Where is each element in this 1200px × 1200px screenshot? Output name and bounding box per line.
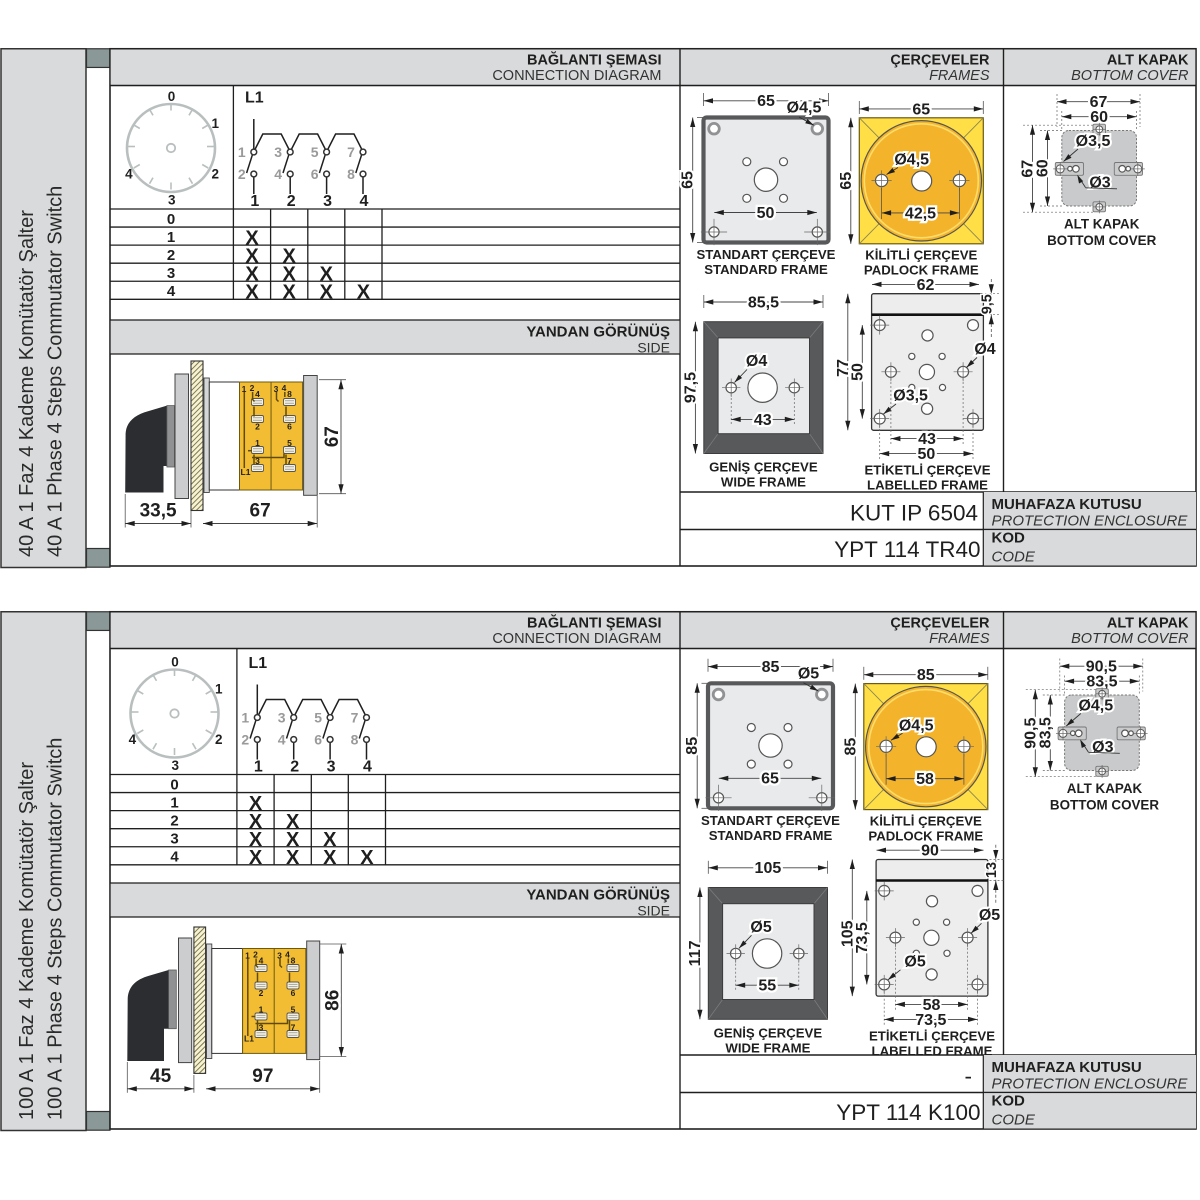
svg-text:LABELLED FRAME: LABELLED FRAME [872, 1043, 993, 1058]
svg-text:62: 62 [917, 277, 935, 294]
svg-text:85,5: 85,5 [748, 294, 779, 311]
svg-text:CONNECTION DIAGRAM: CONNECTION DIAGRAM [492, 631, 661, 647]
svg-text:50: 50 [917, 446, 935, 463]
svg-text:1: 1 [250, 193, 259, 210]
svg-text:50: 50 [849, 363, 866, 381]
svg-text:3: 3 [255, 456, 260, 466]
svg-text:0: 0 [171, 655, 179, 670]
svg-text:KUT IP 6504: KUT IP 6504 [850, 501, 978, 526]
svg-text:3: 3 [170, 830, 178, 847]
svg-text:4: 4 [259, 956, 264, 966]
svg-text:4: 4 [285, 950, 290, 960]
svg-text:L1: L1 [249, 655, 268, 672]
svg-text:CODE: CODE [992, 1111, 1036, 1128]
svg-text:Ø4: Ø4 [974, 341, 995, 358]
svg-text:Ø5: Ø5 [979, 907, 1000, 924]
svg-text:YPT 114 TR40: YPT 114 TR40 [834, 537, 980, 562]
svg-text:67: 67 [250, 501, 271, 522]
svg-text:2: 2 [290, 759, 299, 776]
svg-text:Ø3,5: Ø3,5 [1076, 133, 1111, 150]
svg-text:4: 4 [170, 849, 179, 866]
svg-text:1: 1 [241, 709, 249, 725]
svg-text:1: 1 [245, 951, 250, 961]
svg-text:4: 4 [255, 389, 260, 399]
svg-text:100 A 1 Phase 4 Steps Commutat: 100 A 1 Phase 4 Steps Commutator Switch [45, 738, 67, 1120]
svg-text:2: 2 [238, 166, 246, 182]
svg-text:3: 3 [168, 193, 176, 208]
svg-text:1: 1 [242, 384, 247, 394]
svg-text:STANDART ÇERÇEVE: STANDART ÇERÇEVE [697, 247, 836, 262]
svg-text:67: 67 [322, 426, 343, 447]
svg-text:Ø5: Ø5 [904, 953, 925, 970]
svg-text:KOD: KOD [992, 1092, 1026, 1109]
svg-text:STANDARD FRAME: STANDARD FRAME [709, 828, 833, 843]
svg-text:Ø4,5: Ø4,5 [787, 100, 822, 117]
svg-text:2: 2 [253, 950, 258, 960]
svg-text:3: 3 [274, 144, 282, 160]
svg-text:3: 3 [323, 193, 332, 210]
svg-text:85: 85 [684, 737, 701, 755]
svg-text:90: 90 [921, 843, 939, 860]
svg-text:Ø4: Ø4 [746, 353, 767, 370]
svg-text:Ø4,5: Ø4,5 [894, 152, 929, 169]
svg-text:40 A 1 Phase 4 Steps Commutato: 40 A 1 Phase 4 Steps Commutator Switch [45, 186, 67, 557]
svg-text:SIDE: SIDE [637, 903, 670, 919]
svg-text:8: 8 [291, 956, 296, 966]
svg-text:X: X [323, 847, 337, 869]
svg-text:73,5: 73,5 [854, 922, 871, 953]
svg-text:GENİŞ ÇERÇEVE: GENİŞ ÇERÇEVE [714, 1025, 823, 1040]
svg-text:55: 55 [758, 978, 776, 995]
svg-text:97,5: 97,5 [682, 372, 699, 403]
svg-text:YANDAN GÖRÜNÜŞ: YANDAN GÖRÜNÜŞ [526, 887, 670, 904]
svg-text:7: 7 [291, 1023, 296, 1033]
svg-text:2: 2 [215, 732, 223, 747]
svg-text:2: 2 [259, 988, 264, 998]
svg-text:2: 2 [241, 731, 249, 747]
svg-text:BOTTOM COVER: BOTTOM COVER [1050, 798, 1159, 813]
svg-text:65: 65 [680, 171, 697, 189]
svg-text:KOD: KOD [992, 529, 1026, 546]
svg-text:X: X [245, 281, 259, 303]
svg-text:ALT KAPAK: ALT KAPAK [1107, 53, 1189, 69]
svg-text:L1: L1 [244, 1034, 254, 1044]
svg-text:PROTECTION ENCLOSURE: PROTECTION ENCLOSURE [992, 1075, 1189, 1092]
svg-text:PADLOCK FRAME: PADLOCK FRAME [864, 263, 979, 278]
svg-text:85: 85 [917, 667, 935, 684]
svg-text:6: 6 [291, 988, 296, 998]
svg-text:KİLİTLİ ÇERÇEVE: KİLİTLİ ÇERÇEVE [870, 813, 982, 828]
svg-text:0: 0 [167, 211, 175, 228]
svg-text:105: 105 [755, 860, 782, 877]
svg-text:PADLOCK FRAME: PADLOCK FRAME [868, 828, 983, 843]
svg-text:1: 1 [167, 229, 175, 246]
svg-text:3: 3 [278, 709, 286, 725]
svg-text:ÇERÇEVELER: ÇERÇEVELER [890, 53, 990, 69]
svg-text:X: X [357, 281, 371, 303]
svg-text:45: 45 [150, 1066, 172, 1087]
svg-text:-: - [965, 1064, 973, 1089]
svg-text:Ø4,5: Ø4,5 [899, 717, 934, 734]
svg-text:117: 117 [687, 940, 704, 966]
svg-text:ÇERÇEVELER: ÇERÇEVELER [890, 616, 990, 632]
svg-text:MUHAFAZA KUTUSU: MUHAFAZA KUTUSU [992, 1059, 1142, 1076]
svg-text:WIDE FRAME: WIDE FRAME [725, 1040, 810, 1055]
svg-text:86: 86 [322, 990, 343, 1011]
svg-text:65: 65 [761, 771, 779, 788]
svg-text:50: 50 [757, 205, 775, 222]
svg-text:ETİKETLİ ÇERÇEVE: ETİKETLİ ÇERÇEVE [869, 1028, 995, 1043]
svg-text:6: 6 [287, 422, 292, 432]
svg-text:65: 65 [912, 101, 930, 118]
svg-text:7: 7 [351, 709, 359, 725]
svg-text:2: 2 [287, 193, 296, 210]
svg-text:4: 4 [125, 167, 133, 182]
svg-text:5: 5 [314, 709, 322, 725]
svg-text:X: X [320, 281, 334, 303]
svg-text:13: 13 [984, 862, 1000, 878]
svg-text:3: 3 [167, 265, 175, 282]
svg-text:CODE: CODE [992, 548, 1036, 565]
svg-text:X: X [360, 847, 374, 869]
svg-text:BOTTOM COVER: BOTTOM COVER [1047, 233, 1156, 248]
svg-text:65: 65 [838, 172, 855, 190]
svg-text:WIDE FRAME: WIDE FRAME [721, 475, 806, 490]
svg-text:X: X [286, 847, 300, 869]
svg-text:BAĞLANTI ŞEMASI: BAĞLANTI ŞEMASI [527, 51, 662, 69]
svg-text:1: 1 [238, 144, 246, 160]
svg-text:1: 1 [259, 1005, 264, 1015]
svg-text:YANDAN GÖRÜNÜŞ: YANDAN GÖRÜNÜŞ [526, 324, 670, 341]
svg-text:Ø4,5: Ø4,5 [1078, 698, 1113, 715]
svg-text:X: X [283, 281, 297, 303]
svg-text:SIDE: SIDE [637, 340, 670, 356]
svg-text:1: 1 [255, 438, 260, 448]
svg-text:CONNECTION DIAGRAM: CONNECTION DIAGRAM [492, 68, 661, 84]
svg-text:YPT 114 K100: YPT 114 K100 [836, 1100, 980, 1125]
svg-text:33,5: 33,5 [140, 501, 177, 522]
svg-text:L1: L1 [241, 467, 251, 477]
svg-text:2: 2 [167, 247, 175, 264]
svg-text:7: 7 [287, 456, 292, 466]
svg-text:8: 8 [351, 731, 359, 747]
svg-text:5: 5 [287, 438, 292, 448]
svg-text:1: 1 [170, 794, 178, 811]
svg-text:5: 5 [311, 144, 319, 160]
svg-text:Ø5: Ø5 [750, 919, 771, 936]
svg-text:ALT KAPAK: ALT KAPAK [1064, 217, 1140, 232]
svg-text:2: 2 [170, 812, 178, 829]
svg-text:4: 4 [274, 166, 282, 182]
svg-text:60: 60 [1035, 159, 1052, 177]
svg-text:0: 0 [168, 89, 176, 104]
svg-text:65: 65 [757, 93, 775, 110]
svg-text:7: 7 [347, 144, 355, 160]
svg-text:4: 4 [282, 383, 287, 393]
svg-text:83,5: 83,5 [1037, 717, 1054, 748]
svg-text:3: 3 [259, 1023, 264, 1033]
svg-text:ALT KAPAK: ALT KAPAK [1067, 781, 1143, 796]
svg-text:1: 1 [215, 682, 223, 697]
svg-text:Ø5: Ø5 [798, 665, 819, 682]
svg-text:BOTTOM COVER: BOTTOM COVER [1071, 68, 1189, 84]
svg-text:97: 97 [252, 1066, 273, 1087]
svg-text:2: 2 [250, 383, 255, 393]
svg-text:58: 58 [916, 771, 934, 788]
svg-text:2: 2 [255, 422, 260, 432]
svg-text:73,5: 73,5 [915, 1012, 946, 1029]
svg-text:4: 4 [167, 283, 176, 300]
svg-text:4: 4 [363, 759, 372, 776]
svg-text:STANDART ÇERÇEVE: STANDART ÇERÇEVE [701, 813, 840, 828]
svg-text:100 A 1 Faz 4 Kademe Komütatör: 100 A 1 Faz 4 Kademe Komütatör Şalter [16, 762, 38, 1120]
svg-text:BOTTOM COVER: BOTTOM COVER [1071, 631, 1189, 647]
svg-text:1: 1 [254, 759, 263, 776]
svg-text:8: 8 [287, 389, 292, 399]
svg-text:85: 85 [762, 659, 780, 676]
svg-text:3: 3 [327, 759, 336, 776]
svg-text:4: 4 [360, 193, 369, 210]
svg-text:6: 6 [314, 731, 322, 747]
svg-text:4: 4 [278, 731, 286, 747]
svg-text:Ø3,5: Ø3,5 [893, 388, 928, 405]
svg-text:3: 3 [277, 951, 282, 961]
svg-text:FRAMES: FRAMES [929, 68, 990, 84]
svg-text:BAĞLANTI ŞEMASI: BAĞLANTI ŞEMASI [527, 614, 662, 632]
svg-text:4: 4 [129, 732, 137, 747]
svg-text:L1: L1 [245, 90, 264, 107]
svg-text:5: 5 [291, 1005, 296, 1015]
svg-text:PROTECTION ENCLOSURE: PROTECTION ENCLOSURE [992, 512, 1189, 529]
svg-text:STANDARD FRAME: STANDARD FRAME [704, 262, 828, 277]
svg-text:MUHAFAZA KUTUSU: MUHAFAZA KUTUSU [992, 496, 1142, 513]
svg-text:KİLİTLİ ÇERÇEVE: KİLİTLİ ÇERÇEVE [865, 248, 977, 263]
svg-text:3: 3 [274, 384, 279, 394]
svg-text:40 A 1 Faz 4 Kademe Komütatör: 40 A 1 Faz 4 Kademe Komütatör Şalter [16, 210, 38, 557]
svg-text:LABELLED FRAME: LABELLED FRAME [867, 478, 988, 493]
svg-text:3: 3 [172, 758, 180, 773]
svg-text:85: 85 [842, 738, 859, 756]
svg-text:X: X [249, 847, 263, 869]
svg-text:1: 1 [211, 116, 219, 131]
svg-text:2: 2 [211, 167, 219, 182]
svg-text:ETİKETLİ ÇERÇEVE: ETİKETLİ ÇERÇEVE [864, 463, 990, 478]
svg-text:43: 43 [754, 412, 772, 429]
svg-text:FRAMES: FRAMES [929, 631, 990, 647]
svg-text:GENİŞ ÇERÇEVE: GENİŞ ÇERÇEVE [709, 460, 818, 475]
svg-text:6: 6 [311, 166, 319, 182]
svg-text:42,5: 42,5 [905, 205, 936, 222]
svg-text:9,5: 9,5 [980, 294, 996, 314]
svg-text:ALT KAPAK: ALT KAPAK [1107, 616, 1189, 632]
svg-text:0: 0 [170, 776, 178, 793]
svg-text:8: 8 [347, 166, 355, 182]
